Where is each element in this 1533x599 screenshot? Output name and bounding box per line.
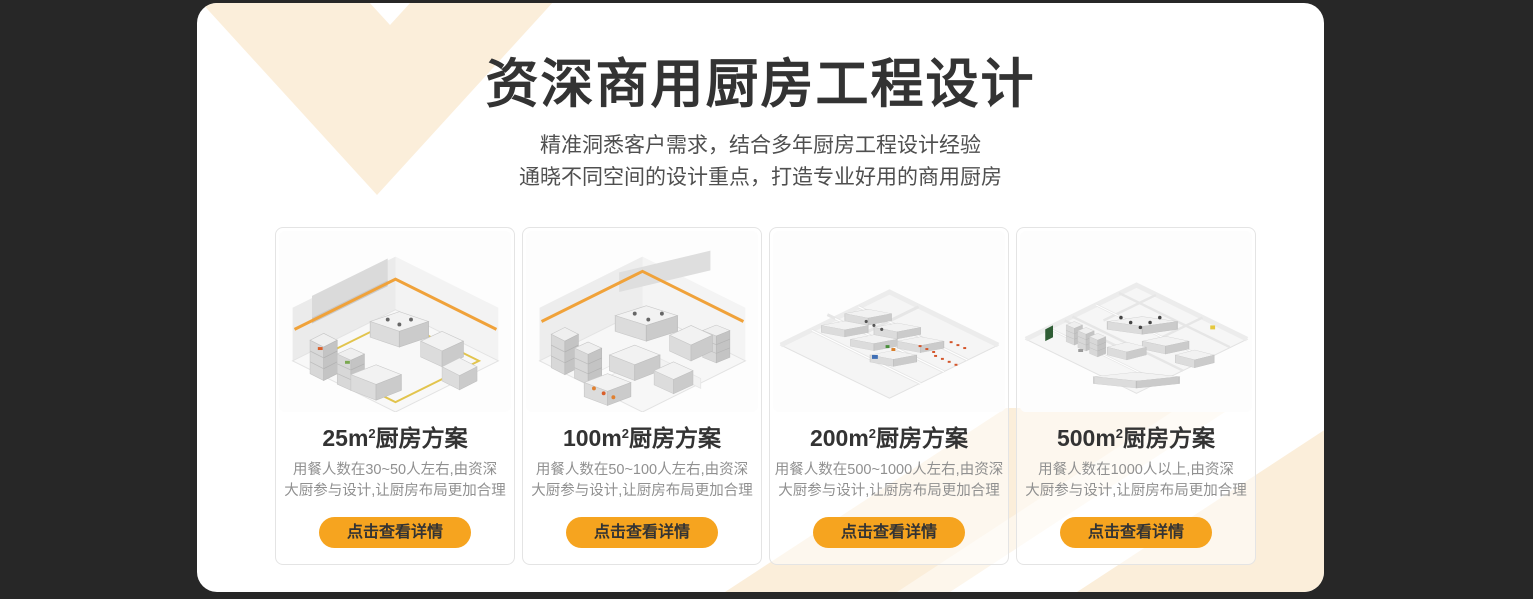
plan-card-200m2[interactable]: 200m2厨房方案 用餐人数在500~1000人左右,由资深 大厨参与设计,让厨… [769, 227, 1009, 565]
card-title: 100m2厨房方案 [563, 425, 721, 453]
card-description: 用餐人数在1000人以上,由资深 大厨参与设计,让厨房布局更加合理 [1025, 460, 1247, 502]
view-details-button[interactable]: 点击查看详情 [566, 517, 718, 548]
card-title: 500m2厨房方案 [1057, 425, 1215, 453]
square-superscript: 2 [622, 426, 629, 441]
card-description: 用餐人数在50~100人左右,由资深 大厨参与设计,让厨房布局更加合理 [531, 460, 753, 502]
kitchen-100-render [526, 231, 758, 412]
kitchen-200-render [773, 231, 1005, 412]
content-panel: 资深商用厨房工程设计 精准洞悉客户需求，结合多年厨房工程设计经验 通晓不同空间的… [197, 3, 1324, 592]
subtitle-line-2: 通晓不同空间的设计重点，打造专业好用的商用厨房 [197, 162, 1324, 194]
page: { "theme": { "page_background": "#272727… [0, 0, 1533, 599]
card-description: 用餐人数在30~50人左右,由资深 大厨参与设计,让厨房布局更加合理 [284, 460, 506, 502]
kitchen-25-render [279, 231, 511, 412]
view-details-button[interactable]: 点击查看详情 [319, 517, 471, 548]
view-details-button[interactable]: 点击查看详情 [813, 517, 965, 548]
plan-card-500m2[interactable]: 500m2厨房方案 用餐人数在1000人以上,由资深 大厨参与设计,让厨房布局更… [1016, 227, 1256, 565]
page-title: 资深商用厨房工程设计 [197, 55, 1324, 116]
plan-cards-row: 25m2厨房方案 用餐人数在30~50人左右,由资深 大厨参与设计,让厨房布局更… [275, 227, 1256, 565]
section-header: 资深商用厨房工程设计 精准洞悉客户需求，结合多年厨房工程设计经验 通晓不同空间的… [197, 3, 1324, 194]
plan-card-100m2[interactable]: 100m2厨房方案 用餐人数在50~100人左右,由资深 大厨参与设计,让厨房布… [522, 227, 762, 565]
card-description: 用餐人数在500~1000人左右,由资深 大厨参与设计,让厨房布局更加合理 [775, 460, 1003, 502]
card-title: 25m2厨房方案 [322, 425, 467, 453]
plan-card-25m2[interactable]: 25m2厨房方案 用餐人数在30~50人左右,由资深 大厨参与设计,让厨房布局更… [275, 227, 515, 565]
page-subtitle: 精准洞悉客户需求，结合多年厨房工程设计经验 通晓不同空间的设计重点，打造专业好用… [197, 130, 1324, 194]
view-details-button[interactable]: 点击查看详情 [1060, 517, 1212, 548]
square-superscript: 2 [368, 426, 375, 441]
square-superscript: 2 [1116, 426, 1123, 441]
card-title: 200m2厨房方案 [810, 425, 968, 453]
square-superscript: 2 [869, 426, 876, 441]
kitchen-500-render [1020, 231, 1252, 412]
subtitle-line-1: 精准洞悉客户需求，结合多年厨房工程设计经验 [197, 130, 1324, 162]
